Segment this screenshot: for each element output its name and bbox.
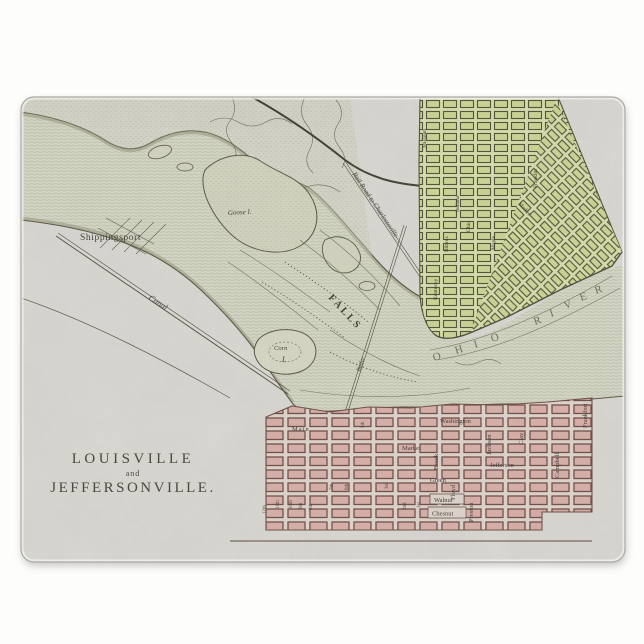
board-mottle-texture (21, 97, 625, 562)
product-photo: Shippingsport Canal Goose I. Corn I. FAL… (0, 0, 644, 644)
cutting-board: Shippingsport Canal Goose I. Corn I. FAL… (10, 97, 625, 562)
map-art: Shippingsport Canal Goose I. Corn I. FAL… (10, 97, 625, 562)
cutting-board-map: Shippingsport Canal Goose I. Corn I. FAL… (0, 0, 644, 644)
